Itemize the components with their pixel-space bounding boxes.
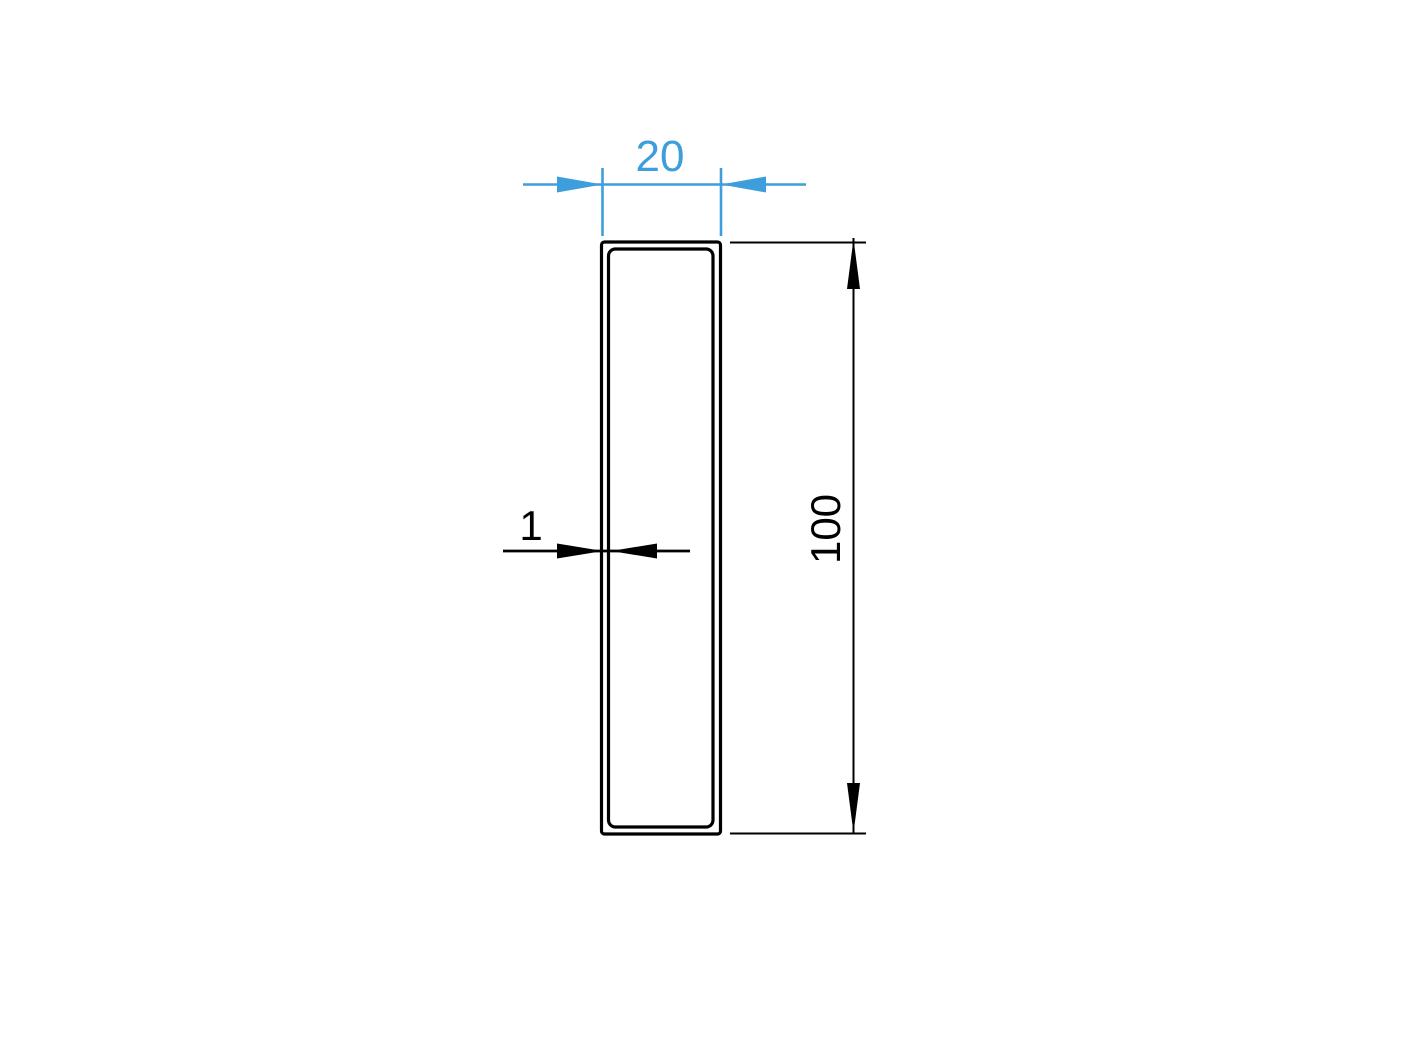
height-dim-arrow-top	[847, 239, 860, 289]
width-dim-arrow-left	[557, 177, 603, 193]
tube-outer-outline	[602, 242, 721, 834]
height-dim-value: 100	[802, 494, 849, 564]
height-dim-arrow-bottom	[847, 783, 860, 833]
width-dimension: 20	[523, 132, 806, 236]
thickness-dim-arrow-right	[611, 544, 657, 559]
tube-cross-section-drawing: 20 100 1	[0, 0, 1417, 1062]
thickness-dim-arrow-left	[557, 544, 603, 559]
tube-profile	[602, 242, 721, 834]
width-dim-arrow-right	[721, 177, 766, 193]
height-dimension: 100	[730, 238, 866, 834]
width-dim-value: 20	[636, 132, 685, 181]
tube-inner-outline	[609, 249, 714, 827]
thickness-dimension: 1	[503, 502, 690, 559]
thickness-dim-value: 1	[519, 502, 542, 549]
technical-drawing-canvas: 20 100 1	[0, 0, 1417, 1062]
